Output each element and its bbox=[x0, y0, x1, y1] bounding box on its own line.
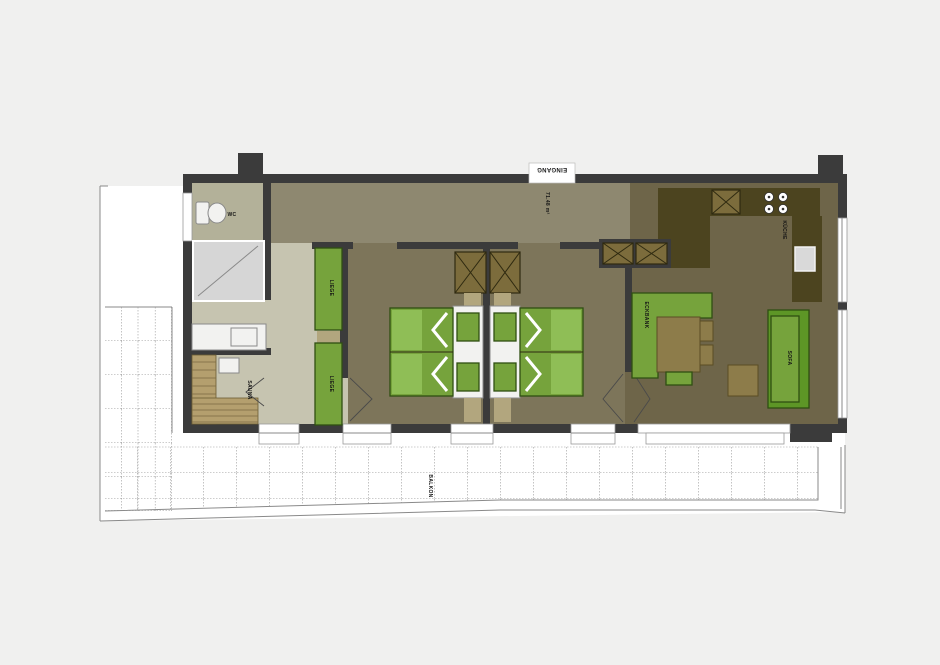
label-balcony: BALKON bbox=[427, 474, 433, 497]
washroom bbox=[192, 324, 266, 350]
label-wc: WC bbox=[228, 212, 237, 218]
window-wc bbox=[183, 193, 192, 241]
double-bed-1 bbox=[390, 308, 453, 396]
bed-platform-1 bbox=[453, 306, 483, 398]
wall-protrusion-left bbox=[238, 153, 263, 174]
window-bedroom-1 bbox=[343, 424, 391, 444]
sliding-door-living bbox=[638, 424, 790, 444]
coffee-table bbox=[728, 365, 758, 396]
dining-chair-1 bbox=[700, 321, 713, 341]
dining-chair-2 bbox=[700, 345, 713, 365]
floor-hallway bbox=[263, 183, 630, 243]
shower-room bbox=[193, 241, 264, 301]
window-living bbox=[838, 310, 847, 418]
floor-plan-page: EINGANG 71.48 m² WC SAUNA LIEGE LIEGE KÜ… bbox=[0, 0, 940, 665]
label-lounger-1: LIEGE bbox=[328, 280, 334, 297]
window-bedroom-2 bbox=[571, 424, 615, 444]
window-kitchen bbox=[838, 218, 847, 302]
window-center bbox=[451, 424, 493, 444]
dining-table bbox=[657, 317, 700, 372]
sauna-stove bbox=[219, 358, 239, 373]
label-lounger-2: LIEGE bbox=[328, 376, 334, 393]
floor-plan: EINGANG 71.48 m² WC SAUNA LIEGE LIEGE KÜ… bbox=[0, 0, 940, 665]
label-sauna: SAUNA bbox=[246, 380, 252, 399]
label-sofa: SOFA bbox=[786, 351, 792, 366]
wc-room bbox=[196, 202, 226, 224]
window-corridor bbox=[259, 424, 299, 444]
label-corner-bench: ECKBANK bbox=[643, 301, 649, 328]
kitchen-sink bbox=[795, 247, 815, 271]
double-bed-2 bbox=[520, 308, 583, 396]
label-kitchen: KÜCHE bbox=[781, 220, 788, 240]
washbasin bbox=[231, 328, 257, 346]
hall-cabinet bbox=[599, 239, 671, 268]
kitchen-tall-cabinet bbox=[712, 190, 740, 214]
wellness-corridor bbox=[315, 248, 342, 425]
toilet bbox=[196, 202, 226, 224]
wall-protrusion-right bbox=[818, 155, 843, 174]
label-area: 71.48 m² bbox=[544, 192, 550, 214]
dining-chair-3 bbox=[666, 372, 692, 385]
lounger-table bbox=[317, 331, 340, 343]
entrance-door bbox=[529, 163, 575, 183]
label-entrance: EINGANG bbox=[537, 166, 567, 172]
bed-platform-2 bbox=[490, 306, 520, 398]
sauna-bench-bottom bbox=[192, 398, 258, 424]
